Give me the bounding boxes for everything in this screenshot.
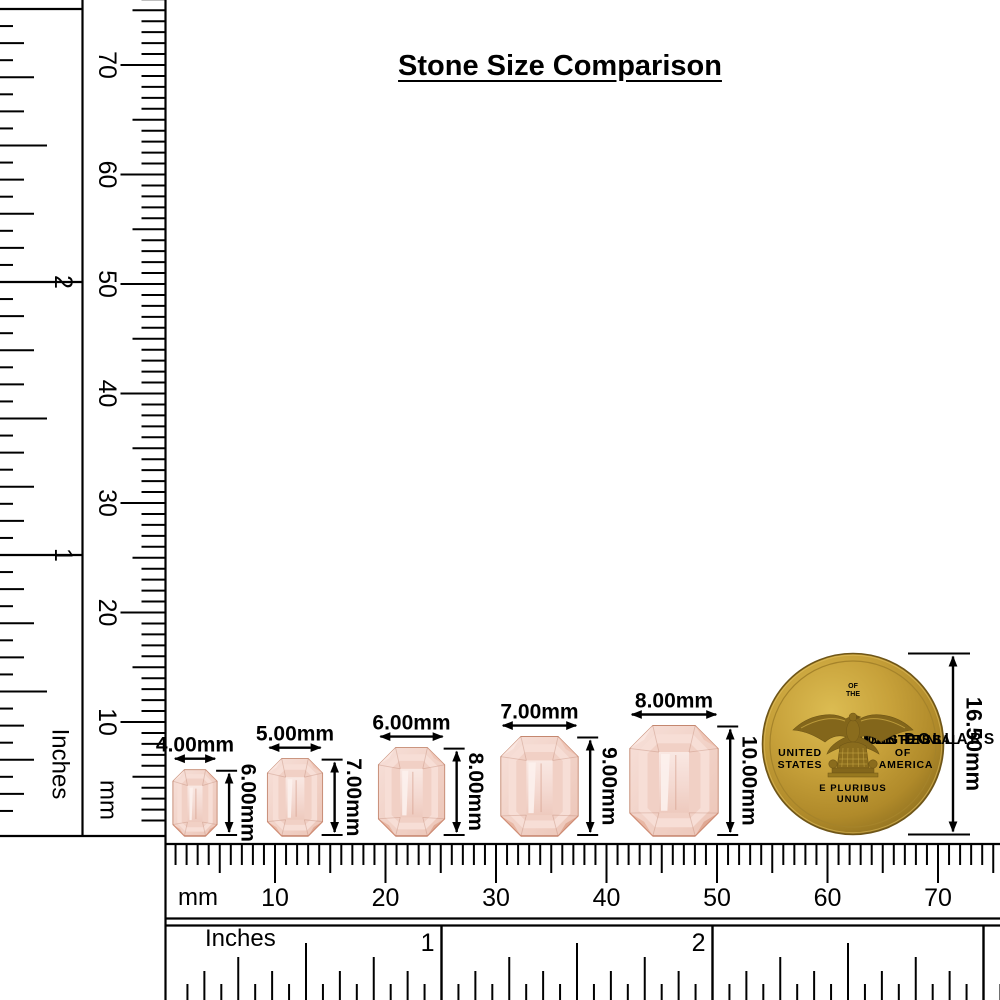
stone-height-label: 9.00mm bbox=[598, 747, 621, 825]
ruler-label: 70 bbox=[924, 884, 952, 912]
ruler-label: 1 bbox=[49, 548, 77, 562]
ruler-label: 2 bbox=[692, 929, 706, 957]
scene-svg: 12Inches10203040506070mm10203040506070mm… bbox=[0, 0, 1000, 1000]
gem bbox=[173, 770, 217, 836]
ruler-label: 40 bbox=[93, 380, 121, 408]
stone-2: 5.00mm7.00mm bbox=[256, 723, 365, 837]
gem bbox=[630, 726, 718, 837]
stone-size-comparison-page: Stone Size Comparison 12Inches1020304050… bbox=[0, 0, 1000, 1000]
stone-width-dimension: 4.00mm bbox=[156, 734, 234, 759]
ruler-label: 10 bbox=[261, 884, 289, 912]
stone-height-dimension: 8.00mm bbox=[444, 749, 488, 835]
ruler-label: 30 bbox=[93, 489, 121, 517]
coin-text-united: UNITED bbox=[778, 747, 822, 759]
ruler-label: 2 bbox=[49, 275, 77, 289]
coin: BICENTENNIALCONGRESSFIVE DOLLARSOFTHEUNI… bbox=[763, 654, 997, 835]
stone-width-label: 5.00mm bbox=[256, 723, 334, 746]
ruler-label: 50 bbox=[703, 884, 731, 912]
stone-width-label: 8.00mm bbox=[635, 690, 713, 713]
stone-1: 4.00mm6.00mm bbox=[156, 734, 260, 842]
stone-height-label: 6.00mm bbox=[237, 764, 260, 842]
coin-text-america: AMERICA bbox=[879, 759, 934, 771]
stone-height-dimension: 6.00mm bbox=[216, 764, 260, 842]
stone-height-dimension: 9.00mm bbox=[577, 738, 621, 835]
ruler-label: 40 bbox=[593, 884, 621, 912]
stone-width-label: 7.00mm bbox=[500, 701, 578, 724]
coin-text-of: OF bbox=[848, 683, 858, 690]
stone-height-dimension: 7.00mm bbox=[322, 758, 366, 836]
stone-width-dimension: 7.00mm bbox=[500, 701, 578, 726]
stone-width-dimension: 5.00mm bbox=[256, 723, 334, 748]
ruler-label: 10 bbox=[93, 708, 121, 736]
ruler-label: 70 bbox=[93, 51, 121, 79]
ruler-label: 1 bbox=[421, 929, 435, 957]
bottom-mm-unit-label: mm bbox=[178, 884, 218, 911]
stone-height-label: 8.00mm bbox=[464, 753, 487, 831]
left-mm-ruler: 10203040506070mm bbox=[93, 0, 166, 821]
coin-text-e-pluribus: E PLURIBUS bbox=[819, 783, 887, 794]
left-mm-unit-label: mm bbox=[95, 780, 122, 820]
stone-height-label: 10.00mm bbox=[738, 736, 761, 826]
gem bbox=[267, 759, 322, 836]
coin-text-unum: UNUM bbox=[837, 794, 870, 805]
stone-width-dimension: 8.00mm bbox=[632, 690, 716, 715]
coin-diameter-label: 16.50mm bbox=[962, 697, 987, 791]
ruler-label: 20 bbox=[372, 884, 400, 912]
coin-text-of-2: OF bbox=[895, 747, 911, 759]
stone-height-dimension: 10.00mm bbox=[717, 727, 761, 836]
stone-4: 7.00mm9.00mm bbox=[500, 701, 620, 836]
ruler-label: 60 bbox=[814, 884, 842, 912]
ruler-label: 20 bbox=[93, 599, 121, 627]
gem bbox=[501, 737, 578, 837]
bottom-mm-ruler: 10203040506070mm bbox=[176, 844, 994, 912]
stone-3: 6.00mm8.00mm bbox=[372, 712, 487, 836]
ruler-label: 60 bbox=[93, 161, 121, 189]
gem bbox=[378, 748, 444, 836]
stone-width-label: 6.00mm bbox=[372, 712, 450, 735]
bottom-inch-ruler: 12Inches bbox=[187, 925, 1000, 1000]
coin-text-the: THE bbox=[846, 691, 860, 698]
left-inch-unit-label: Inches bbox=[47, 729, 74, 800]
stone-width-label: 4.00mm bbox=[156, 734, 234, 757]
ruler-label: 50 bbox=[93, 270, 121, 298]
bottom-inch-unit-label: Inches bbox=[205, 925, 276, 952]
coin-text-states: STATES bbox=[778, 759, 823, 771]
stone-height-label: 7.00mm bbox=[342, 758, 365, 836]
stone-5: 8.00mm10.00mm bbox=[630, 690, 761, 837]
ruler-label: 30 bbox=[482, 884, 510, 912]
left-inch-ruler: 12Inches bbox=[0, 9, 83, 811]
stone-width-dimension: 6.00mm bbox=[372, 712, 450, 737]
